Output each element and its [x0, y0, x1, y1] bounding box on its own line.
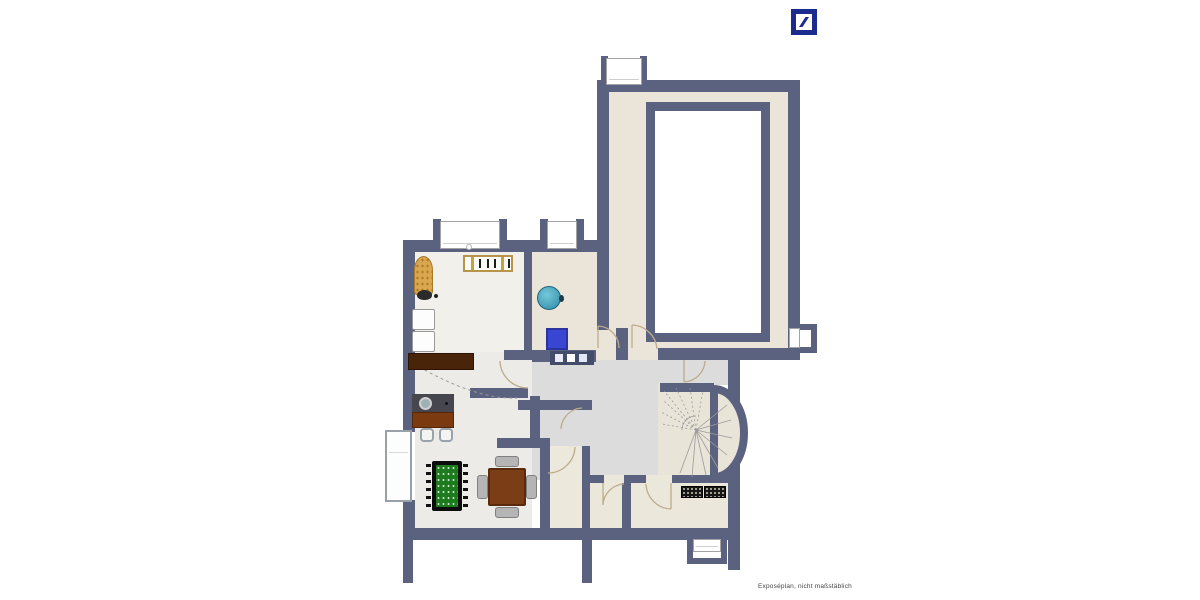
rack-tick	[479, 259, 481, 268]
radiator	[704, 486, 726, 498]
rack-bar	[501, 257, 504, 270]
window	[547, 221, 577, 249]
radiator	[681, 486, 703, 498]
wall-exterior-stub	[728, 540, 740, 570]
wall-segment	[788, 80, 800, 360]
rack-tick	[508, 259, 510, 268]
door-gap	[646, 475, 672, 483]
floor-stair-lightwell	[712, 385, 728, 478]
blue-cabinet	[546, 328, 568, 350]
wall-segment	[590, 475, 604, 483]
foosball-rods	[463, 464, 468, 508]
wall-segment	[497, 438, 544, 448]
left-door-bay	[385, 430, 412, 502]
radiator-cell	[567, 354, 575, 362]
door-gap	[628, 348, 658, 360]
foosball-field	[436, 465, 458, 507]
bar-counter	[412, 412, 454, 428]
pool-room-void	[646, 102, 770, 342]
bar-tap-dot	[445, 402, 448, 405]
washing-machine	[412, 309, 435, 330]
bar-stool	[420, 428, 434, 442]
window-handle	[466, 244, 472, 250]
floor-storage-room	[548, 446, 582, 530]
wall-segment	[524, 252, 532, 352]
rack-tick	[487, 259, 489, 268]
iron	[417, 290, 432, 300]
window-bay-stub	[576, 219, 584, 249]
wall-segment	[616, 328, 628, 360]
foosball-rods	[426, 464, 431, 508]
wall-segment	[672, 475, 728, 483]
floor-plan-page: Exposéplan, nicht maßstäblich	[0, 0, 1200, 600]
wall-segment	[470, 388, 528, 398]
chair	[526, 475, 537, 499]
wall-segment	[624, 475, 646, 483]
radiator-cell	[579, 354, 587, 362]
door-gap	[596, 348, 616, 360]
window	[606, 58, 642, 85]
door-gap	[602, 475, 624, 483]
dryer	[412, 331, 435, 352]
window-bay-stub	[499, 219, 507, 249]
deutsche-bank-logo	[791, 9, 817, 35]
bar-stool	[439, 428, 453, 442]
iron-plug-dot	[434, 294, 438, 298]
wall-segment	[728, 358, 740, 540]
wall-segment	[622, 483, 631, 530]
door-gap	[596, 330, 616, 348]
window	[693, 539, 721, 552]
foosball-table	[432, 461, 462, 511]
wall-segment	[660, 383, 714, 392]
window-bay-stub	[687, 558, 727, 564]
wall-radiator	[550, 351, 594, 365]
dining-table	[488, 468, 526, 506]
rack-tick	[494, 259, 496, 268]
rack-bar	[471, 257, 474, 270]
wall-bench	[408, 353, 474, 370]
logo-slash	[799, 17, 809, 27]
radiator-cell	[555, 354, 563, 362]
boiler-valve	[559, 295, 564, 302]
clothes-drying-rack	[463, 255, 513, 272]
bar-sink	[419, 397, 432, 410]
chair	[495, 456, 519, 467]
window-bay-stub	[721, 538, 727, 560]
wall-exterior-stub	[403, 540, 413, 583]
disclaimer-text: Exposéplan, nicht maßstäblich	[758, 583, 852, 590]
window-bay-stub	[811, 324, 817, 353]
chair	[477, 475, 488, 499]
wall-segment	[582, 446, 590, 536]
wall-segment	[597, 80, 609, 330]
boiler-tank	[537, 286, 561, 310]
wall-exterior-stub	[582, 540, 592, 583]
window	[789, 328, 800, 348]
wall-segment	[540, 438, 550, 538]
floor-stair-area	[658, 383, 714, 480]
chair	[495, 507, 519, 518]
